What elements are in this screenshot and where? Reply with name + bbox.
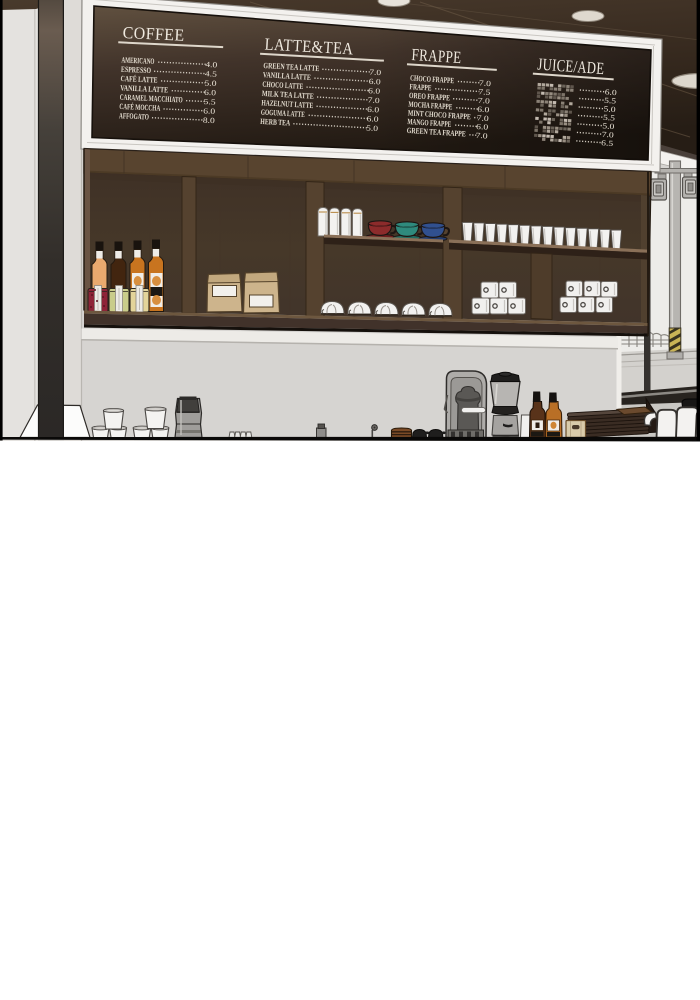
svg-text:5.5: 5.5: [203, 97, 216, 107]
svg-text:5.0: 5.0: [204, 78, 217, 88]
svg-text:6.0: 6.0: [366, 114, 379, 124]
svg-text:FRAPPE: FRAPPE: [411, 45, 462, 67]
svg-text:HERB TEA: HERB TEA: [260, 117, 291, 128]
svg-text:COFFEE: COFFEE: [122, 23, 185, 45]
svg-text:7.0: 7.0: [369, 67, 382, 77]
svg-text:6.5: 6.5: [601, 138, 614, 148]
svg-text:6.0: 6.0: [368, 86, 381, 96]
svg-text:7.0: 7.0: [367, 95, 380, 105]
svg-text:6.0: 6.0: [367, 105, 380, 115]
svg-text:6.0: 6.0: [368, 77, 381, 87]
svg-text:6.0: 6.0: [204, 88, 217, 98]
svg-text:5.0: 5.0: [366, 123, 379, 133]
svg-text:6.0: 6.0: [203, 106, 216, 116]
svg-text:8.0: 8.0: [203, 116, 216, 126]
svg-text:4.5: 4.5: [205, 69, 218, 79]
svg-text:4.0: 4.0: [205, 60, 218, 70]
svg-text:AFFOGATO: AFFOGATO: [119, 111, 149, 121]
svg-text:7.0: 7.0: [475, 131, 488, 141]
